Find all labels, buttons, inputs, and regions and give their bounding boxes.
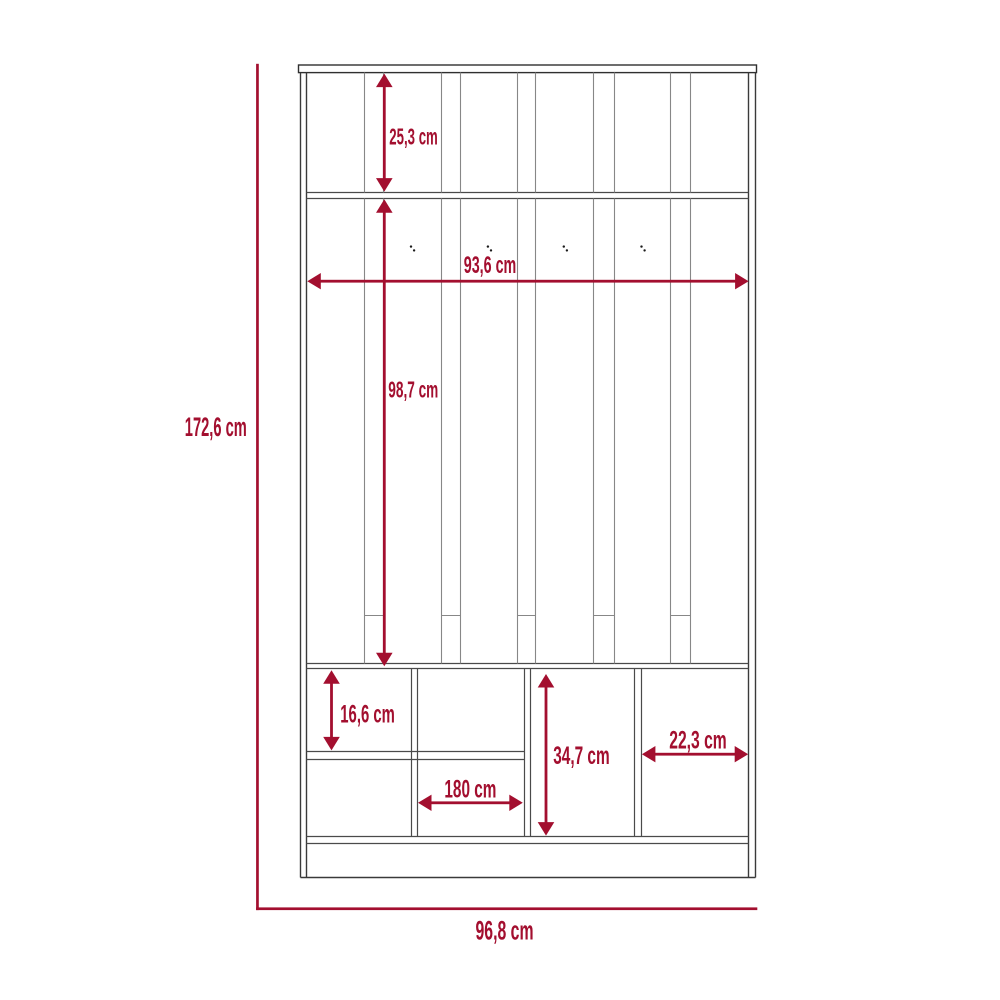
svg-text:93,6 cm: 93,6 cm	[464, 252, 517, 279]
svg-text:96,8 cm: 96,8 cm	[476, 915, 534, 945]
svg-text:180 cm: 180 cm	[444, 776, 496, 804]
svg-text:34,7 cm: 34,7 cm	[553, 742, 610, 770]
svg-text:16,6 cm: 16,6 cm	[340, 701, 395, 729]
svg-text:25,3 cm: 25,3 cm	[389, 123, 438, 149]
svg-text:172,6 cm: 172,6 cm	[185, 412, 247, 442]
svg-text:22,3 cm: 22,3 cm	[669, 726, 727, 754]
svg-text:98,7 cm: 98,7 cm	[388, 376, 438, 402]
